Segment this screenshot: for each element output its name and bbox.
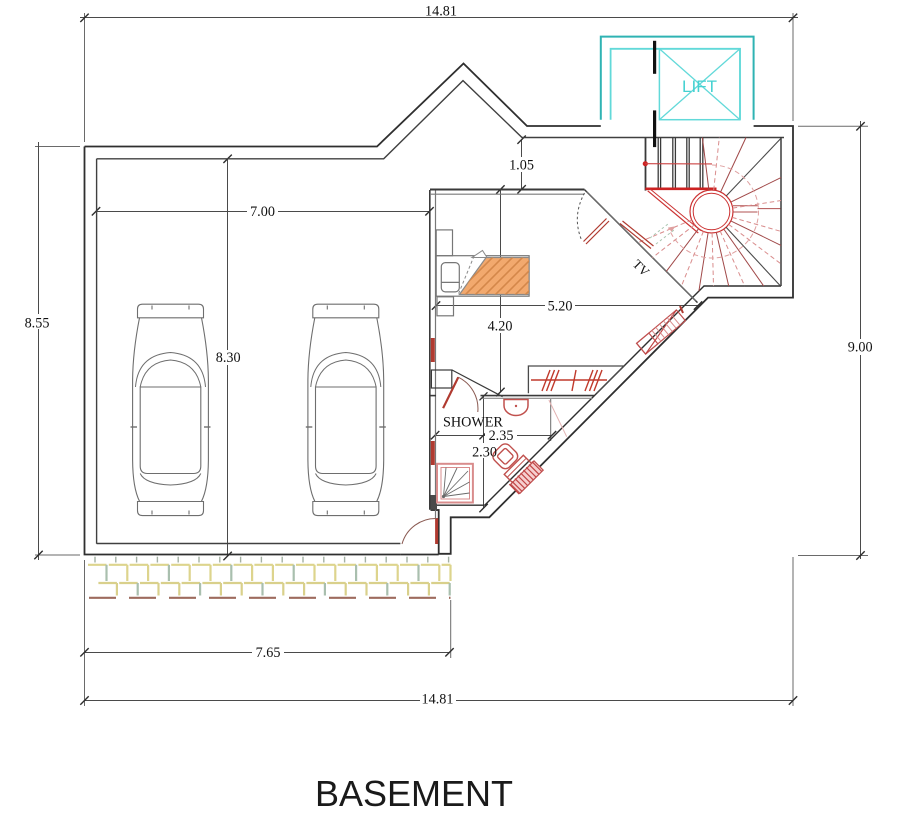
svg-text:LIFT: LIFT xyxy=(682,77,717,96)
svg-text:14.81: 14.81 xyxy=(422,692,454,708)
svg-text:SHOWER: SHOWER xyxy=(443,415,503,431)
svg-text:4.20: 4.20 xyxy=(488,319,513,335)
svg-text:7.00: 7.00 xyxy=(250,204,275,220)
svg-text:7.65: 7.65 xyxy=(256,645,281,661)
svg-text:5.20: 5.20 xyxy=(548,299,573,315)
svg-text:14.81: 14.81 xyxy=(425,4,457,20)
svg-text:1.05: 1.05 xyxy=(509,158,534,174)
svg-text:8.55: 8.55 xyxy=(25,316,50,332)
svg-text:BASEMENT: BASEMENT xyxy=(315,773,513,814)
svg-text:9.00: 9.00 xyxy=(848,339,873,355)
svg-text:2.30: 2.30 xyxy=(472,444,497,460)
svg-text:8.30: 8.30 xyxy=(216,350,241,366)
